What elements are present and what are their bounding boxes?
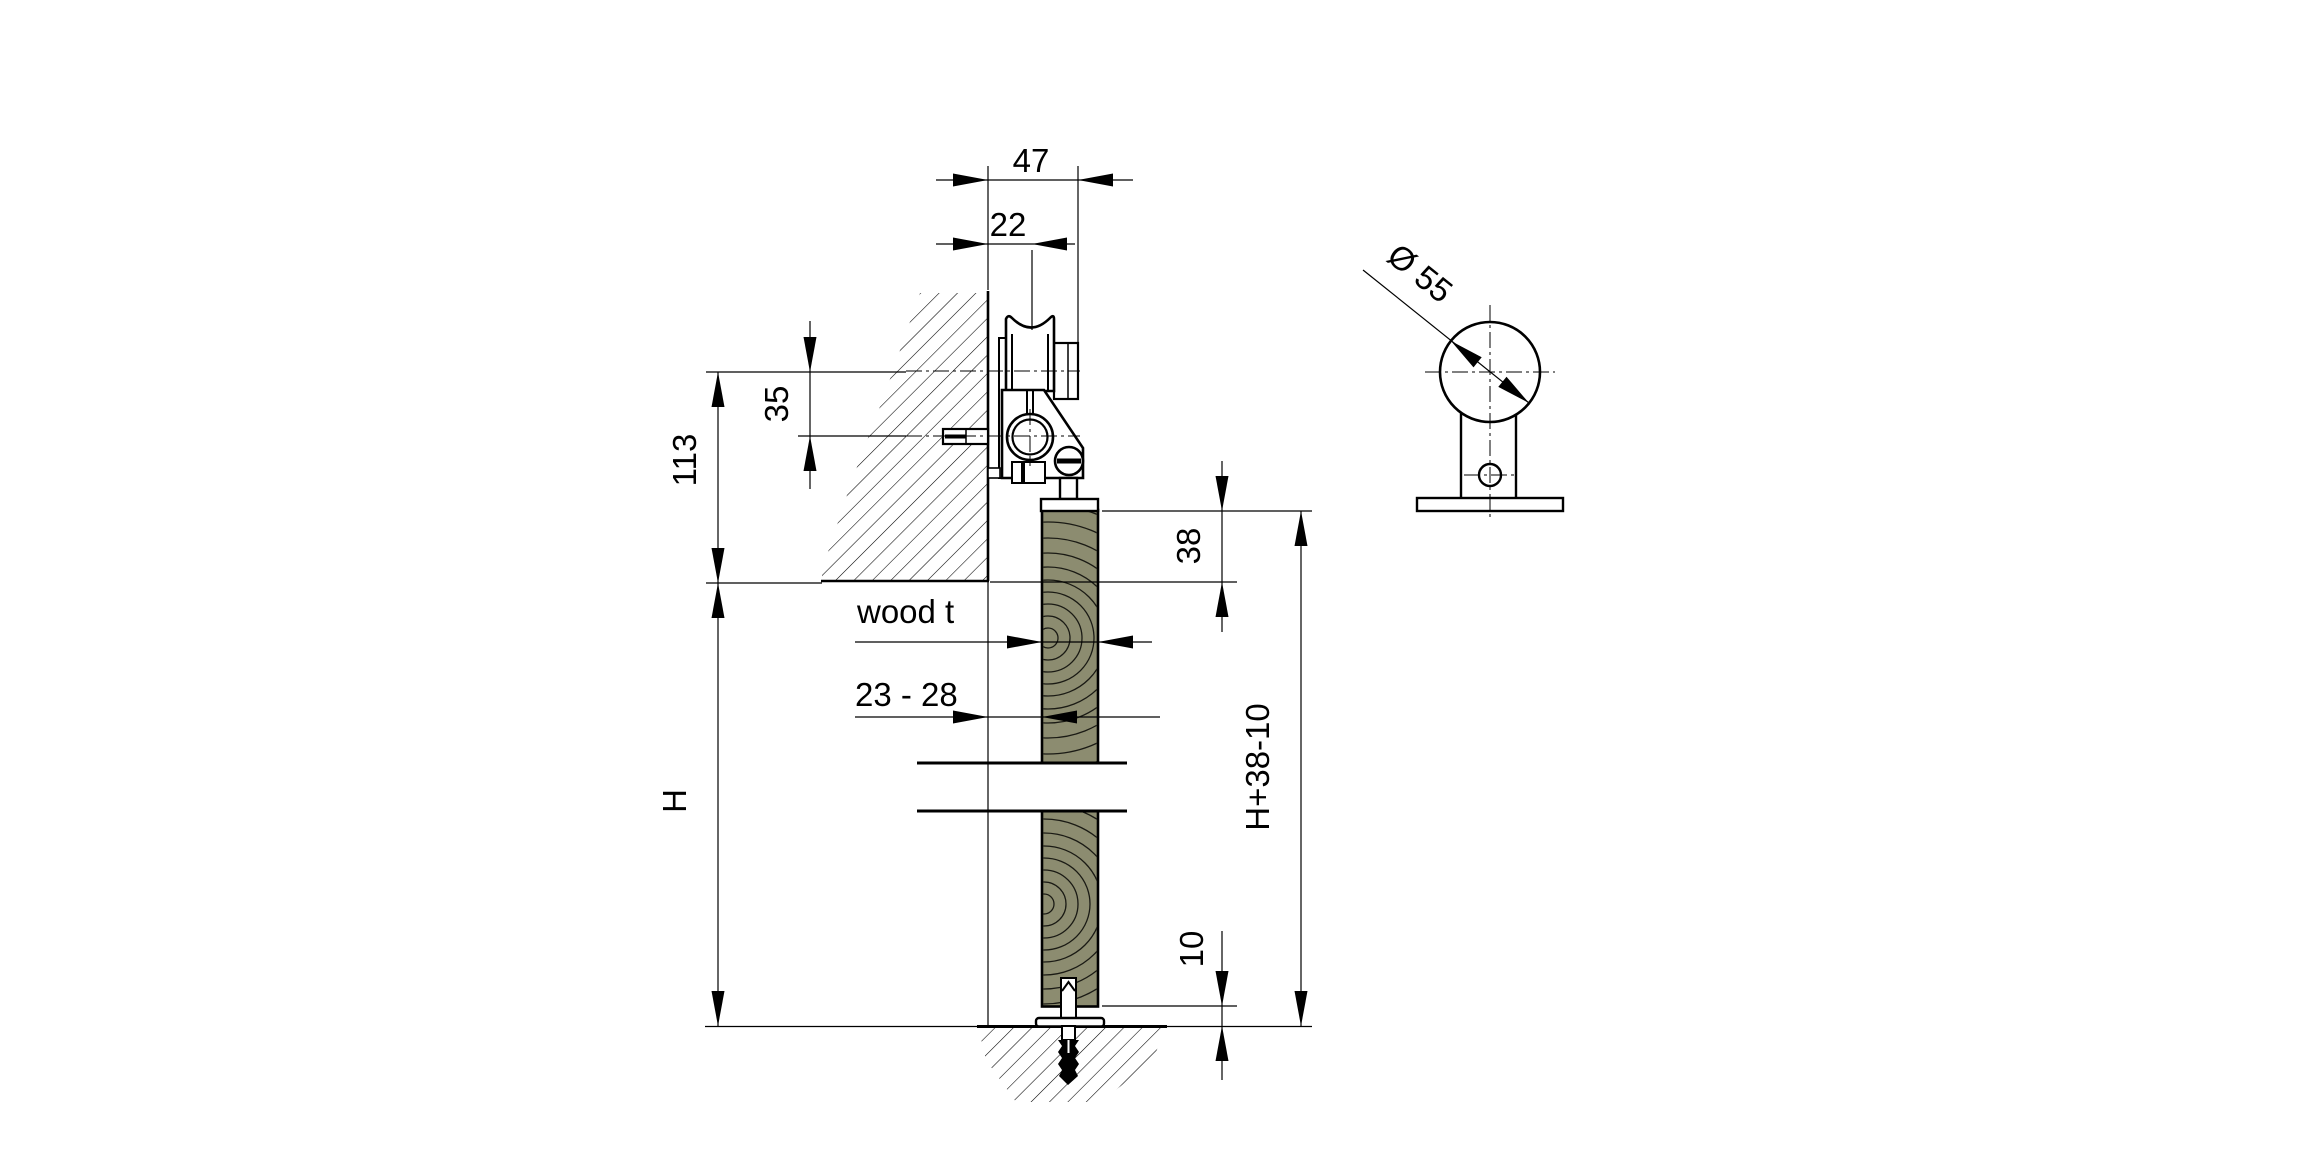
clamp-screw-slot <box>1057 459 1081 464</box>
wood-t-text: wood t <box>856 593 954 630</box>
dim-22-text: 22 <box>990 206 1027 243</box>
dimension-H: H <box>656 583 725 1026</box>
label-wood-thickness: wood t <box>855 593 1152 649</box>
dim-23-28-text: 23 - 28 <box>855 676 958 713</box>
dimension-23-28: 23 - 28 <box>855 676 1160 724</box>
clamp-block-large <box>1024 462 1045 483</box>
dim-10-text: 10 <box>1173 931 1210 968</box>
dim-47-text: 47 <box>1013 142 1050 179</box>
roller-side-view: Ø 55 <box>1363 236 1563 520</box>
dim-diameter-text: Ø 55 <box>1381 236 1460 310</box>
guide-pin-slot <box>1061 978 1076 1018</box>
dimension-H38-10: H+38-10 <box>1239 511 1308 1026</box>
hanger-stem <box>1060 478 1077 499</box>
clamp-block-small <box>1012 462 1022 483</box>
technical-drawing-canvas: 47 22 35 113 H wood t <box>0 0 2302 1174</box>
dimension-113: 113 <box>666 372 822 583</box>
bracket-backplate-foot <box>988 468 1000 478</box>
door-top-cap <box>1041 499 1098 511</box>
dimension-38: 38 <box>990 461 1312 632</box>
dim-H38-10-text: H+38-10 <box>1239 703 1276 831</box>
dim-H-text: H <box>656 789 693 813</box>
wall-section <box>821 291 989 1026</box>
anchor-screw-shaft <box>1062 1026 1075 1040</box>
dim-113-text: 113 <box>666 434 703 487</box>
roller-wheel <box>1006 316 1054 391</box>
dim-35-text: 35 <box>758 386 795 423</box>
dim-38-text: 38 <box>1170 528 1207 565</box>
